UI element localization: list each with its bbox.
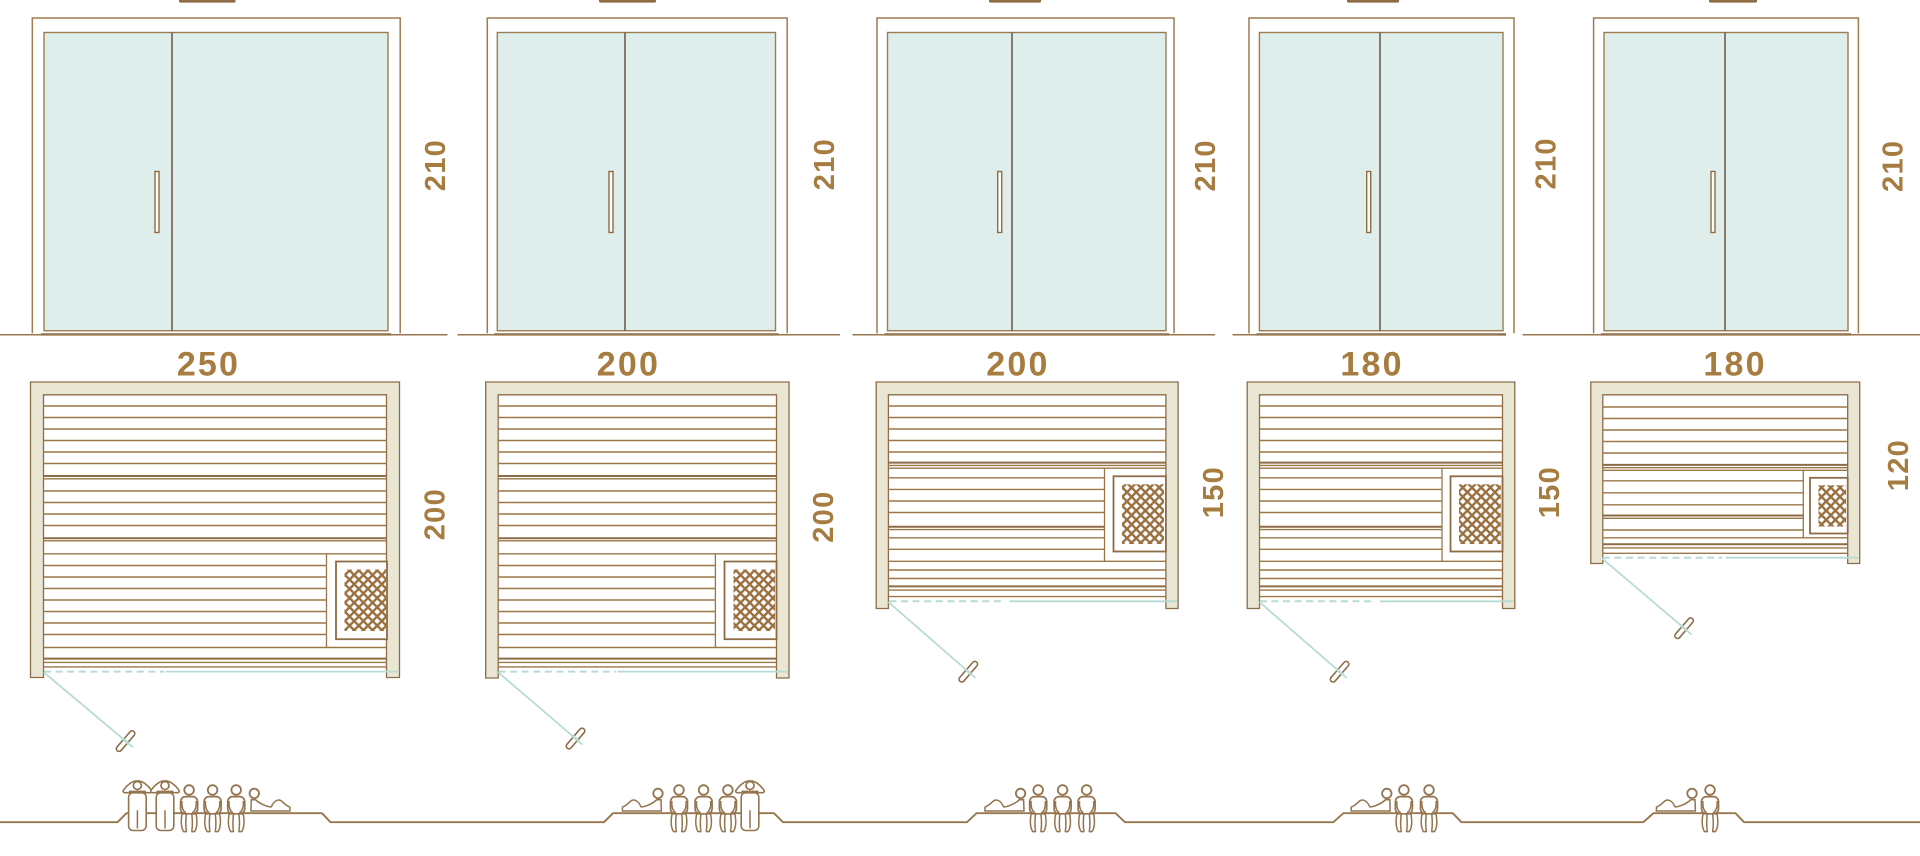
svg-text:200: 200 [986,346,1049,384]
svg-text:200: 200 [808,491,840,543]
svg-text:180: 180 [1340,346,1403,384]
svg-text:200: 200 [419,488,451,540]
svg-text:150: 150 [1534,466,1566,518]
svg-text:210: 210 [1878,140,1910,192]
svg-text:120: 120 [1883,439,1915,491]
svg-text:150: 150 [1198,466,1230,518]
svg-text:250: 250 [177,346,240,384]
svg-text:210: 210 [420,139,452,191]
svg-text:210: 210 [809,138,841,190]
svg-text:210: 210 [1531,137,1563,189]
svg-text:200: 200 [597,346,660,384]
svg-text:210: 210 [1190,139,1222,191]
svg-text:180: 180 [1703,346,1766,384]
